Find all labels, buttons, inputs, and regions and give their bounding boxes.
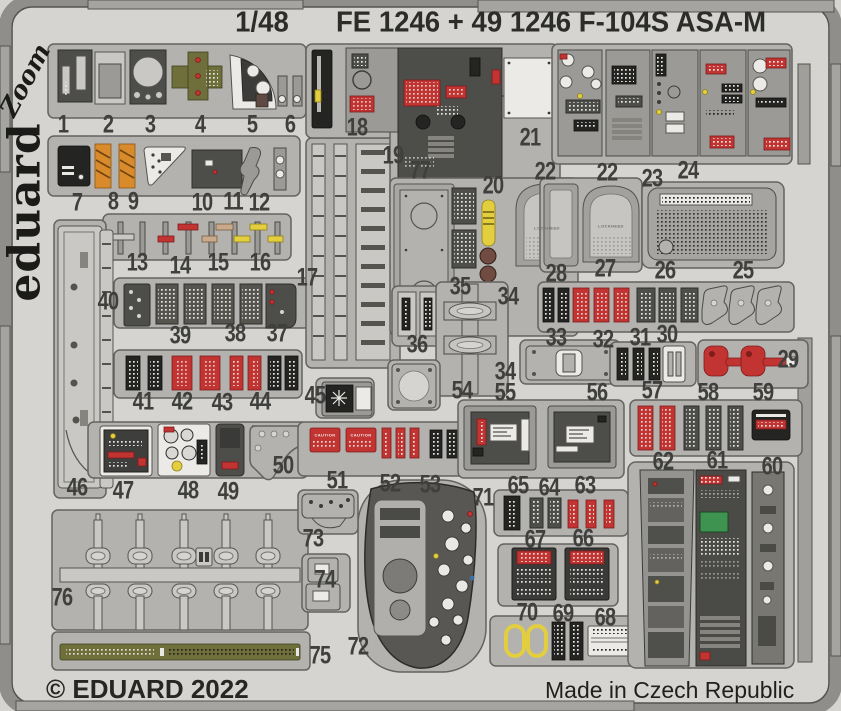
- part-number-label: 34: [498, 283, 519, 312]
- fret-parts-22-23-24-consoles: [552, 44, 792, 164]
- part-number-label: 6: [285, 111, 295, 140]
- made-in-text: Made in Czech Republic: [545, 677, 794, 704]
- fret-part-54: [388, 360, 440, 410]
- fret-parts-63-64-65: [458, 400, 624, 478]
- fret-bottom-right-consoles: [628, 462, 794, 668]
- part-number-label: 68: [595, 604, 616, 633]
- part-number-label: 44: [250, 388, 271, 417]
- copyright-text: © EDUARD 2022: [46, 674, 249, 705]
- part-number-label: 54: [452, 377, 473, 406]
- part-number-label: 36: [407, 331, 428, 360]
- part-number-label: 38: [225, 320, 246, 349]
- part-number-label: 1: [58, 111, 68, 140]
- part-number-label: 61: [707, 447, 728, 476]
- part-number-label: 35: [450, 273, 471, 302]
- part-number-label: 60: [762, 453, 783, 482]
- part-number-label: 64: [539, 474, 560, 503]
- fret-parts-1-6: [48, 44, 306, 118]
- fret-part-76: [52, 510, 308, 630]
- part-number-label: 17: [297, 264, 318, 293]
- part-number-label: 66: [573, 525, 594, 554]
- part-number-label: 21: [520, 124, 541, 153]
- fret-parts-51-52-53: [298, 422, 472, 476]
- part-number-label: 14: [170, 252, 191, 281]
- part-number-label: 22: [597, 159, 618, 188]
- part-number-label: 26: [655, 257, 676, 286]
- part-number-label: 37: [267, 320, 288, 349]
- eduard-logo: eduard: [0, 122, 51, 301]
- part-number-label: 29: [778, 346, 799, 375]
- part-number-label: 53: [420, 471, 441, 500]
- part-number-label: 28: [546, 260, 567, 289]
- part-number-label: 15: [208, 249, 229, 278]
- part-number-label: 40: [98, 288, 119, 317]
- part-number-label: 71: [473, 484, 494, 513]
- part-number-label: 58: [698, 379, 719, 408]
- part-number-label: 31: [630, 324, 651, 353]
- part-number-label: 7: [72, 189, 82, 218]
- etched-micro-text: LOCKHEED: [598, 224, 624, 229]
- part-number-label: 56: [587, 379, 608, 408]
- part-number-label: 5: [247, 111, 257, 140]
- part-number-label: 20: [483, 172, 504, 201]
- part-number-label: 2: [103, 111, 113, 140]
- fret-parts-7-12: [48, 136, 300, 196]
- fret-placard-panels: [498, 544, 618, 606]
- part-number-label: 18: [347, 114, 368, 143]
- part-number-label: 33: [546, 324, 567, 353]
- part-number-label: 24: [678, 157, 699, 186]
- part-number-label: 30: [657, 321, 678, 350]
- part-number-label: 47: [113, 477, 134, 506]
- part-number-label: 39: [170, 322, 191, 351]
- fret-parts-24-25-26-keyboard: [642, 182, 784, 268]
- part-number-label: 43: [212, 389, 233, 418]
- part-number-label: 27: [595, 255, 616, 284]
- part-number-label: 45: [305, 382, 326, 411]
- part-number-label: 11: [223, 188, 243, 217]
- part-number-label: 50: [273, 452, 294, 481]
- part-number-label: 41: [133, 388, 154, 417]
- page-title: FE 1246 + 49 1246 F-104S ASA-M: [336, 7, 766, 40]
- part-number-label: 65: [508, 472, 529, 501]
- part-number-label: 12: [249, 189, 270, 218]
- part-number-label: 46: [67, 474, 88, 503]
- part-number-label: 59: [753, 379, 774, 408]
- part-number-label: 48: [178, 477, 199, 506]
- part-number-label: 52: [380, 470, 401, 499]
- part-number-label: 4: [195, 111, 205, 140]
- part-number-label: 9: [128, 188, 138, 217]
- part-number-label: 16: [250, 249, 271, 278]
- part-number-label: 67: [525, 526, 546, 555]
- part-number-label: 77: [410, 157, 431, 186]
- part-number-label: 8: [108, 188, 118, 217]
- part-number-label: 69: [553, 600, 574, 629]
- part-number-label: 62: [653, 448, 674, 477]
- part-number-label: 3: [145, 111, 155, 140]
- part-number-label: 73: [303, 525, 324, 554]
- part-number-label: 19: [383, 142, 404, 171]
- part-number-label: 22: [535, 158, 556, 187]
- part-number-label: 32: [593, 326, 614, 355]
- part-number-label: 42: [172, 388, 193, 417]
- part-number-label: 76: [52, 584, 73, 613]
- part-number-label: 70: [517, 599, 538, 628]
- part-number-label: 75: [310, 642, 331, 671]
- part-number-label: 55: [495, 379, 516, 408]
- etched-micro-text: LOCKHEED: [534, 226, 560, 231]
- part-number-label: 23: [642, 165, 663, 194]
- fret-parts-17-18-rails: [306, 138, 400, 368]
- part-number-label: 51: [327, 467, 348, 496]
- fret-part-72-instrument-panel: [358, 480, 486, 672]
- etched-micro-text: CAUTION: [350, 433, 371, 438]
- part-number-label: 10: [192, 189, 213, 218]
- part-number-label: 74: [315, 566, 336, 595]
- photo-etch-sheet: 1/48 FE 1246 + 49 1246 F-104S ASA-M Zoom…: [0, 0, 841, 711]
- part-number-label: 63: [575, 472, 596, 501]
- part-number-label: 49: [218, 478, 239, 507]
- part-number-label: 13: [127, 249, 148, 278]
- scale-label: 1/48: [235, 7, 289, 40]
- fret-part-75: [52, 632, 310, 670]
- part-number-label: 25: [733, 257, 754, 286]
- part-number-label: 57: [642, 377, 663, 406]
- part-number-label: 72: [348, 633, 369, 662]
- etched-micro-text: CAUTION: [314, 433, 335, 438]
